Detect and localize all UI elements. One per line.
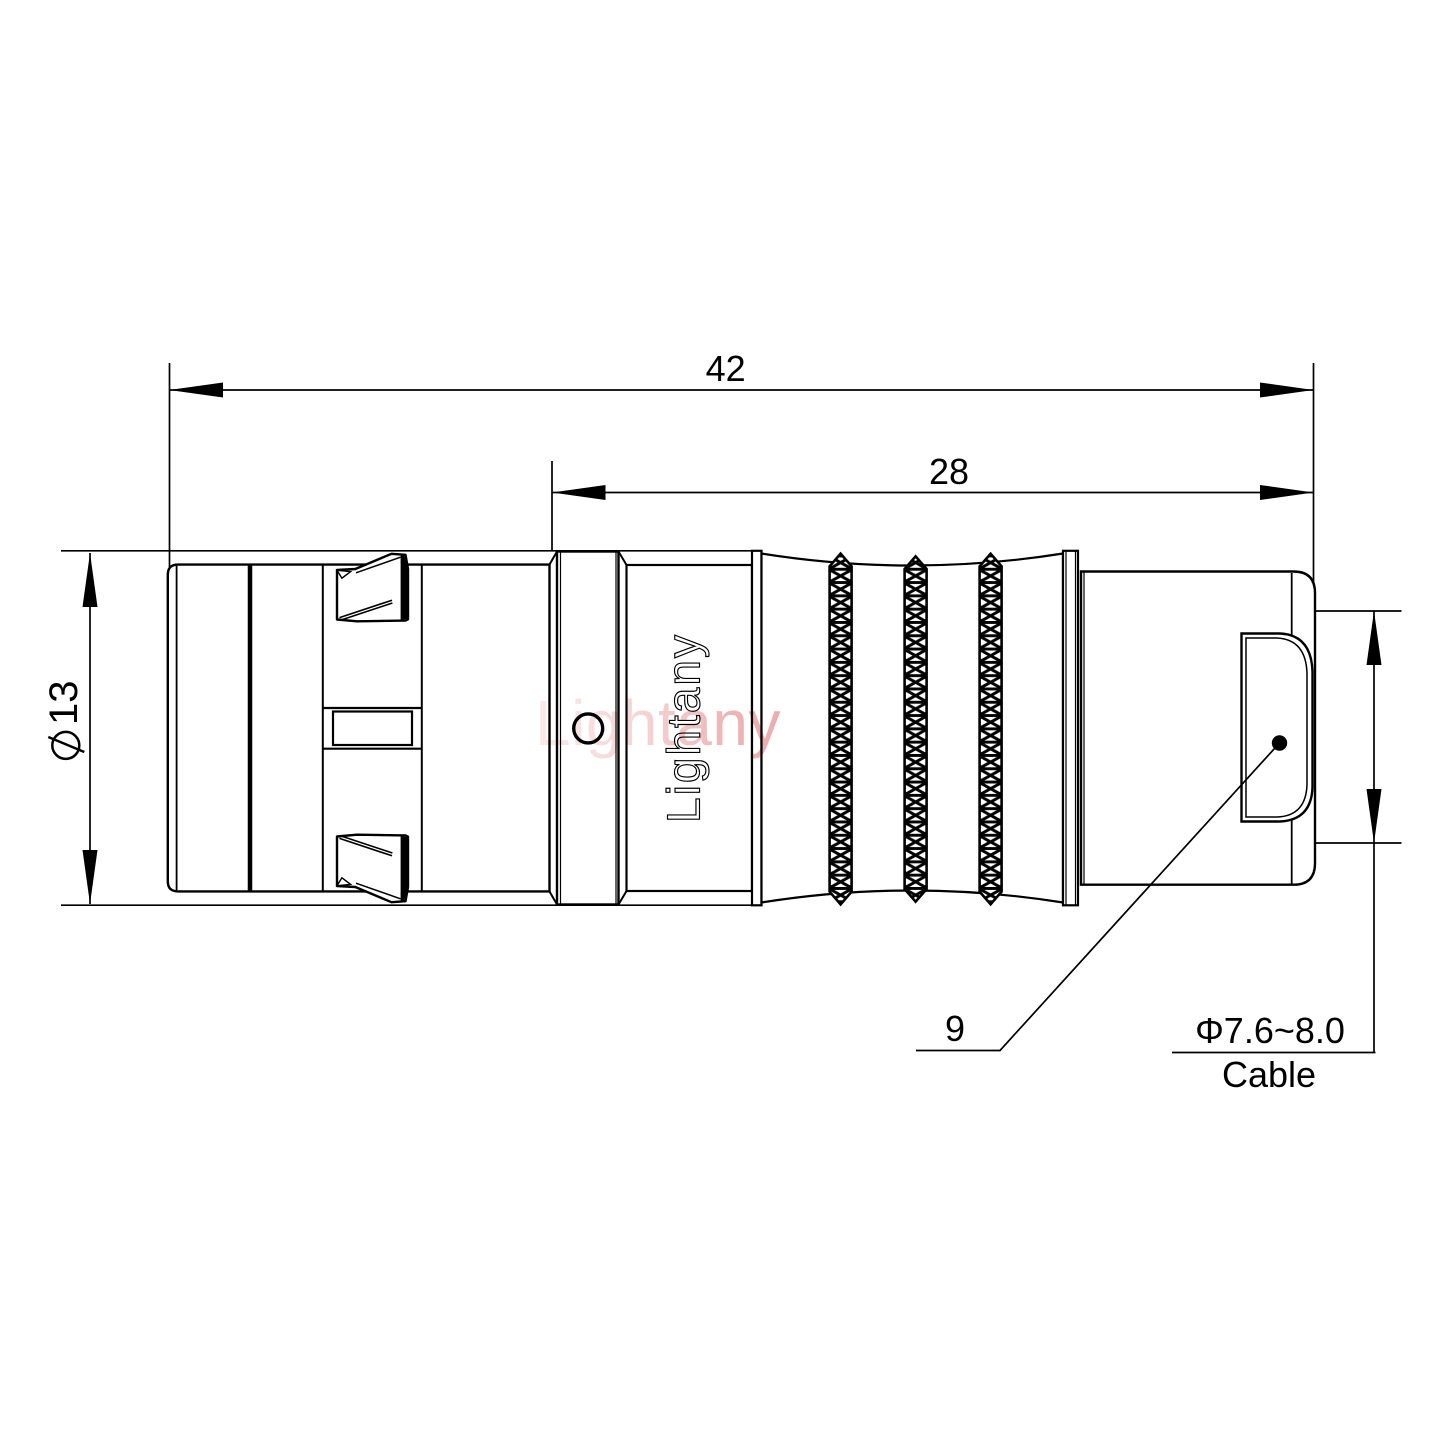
svg-text:Lightany: Lightany — [535, 687, 781, 759]
svg-text:Φ7.6~8.0: Φ7.6~8.0 — [1195, 1010, 1345, 1051]
svg-text:9: 9 — [945, 1008, 965, 1049]
svg-text:13: 13 — [42, 681, 86, 726]
svg-text:Cable: Cable — [1222, 1054, 1316, 1095]
svg-text:28: 28 — [929, 451, 969, 492]
svg-text:42: 42 — [706, 348, 746, 389]
